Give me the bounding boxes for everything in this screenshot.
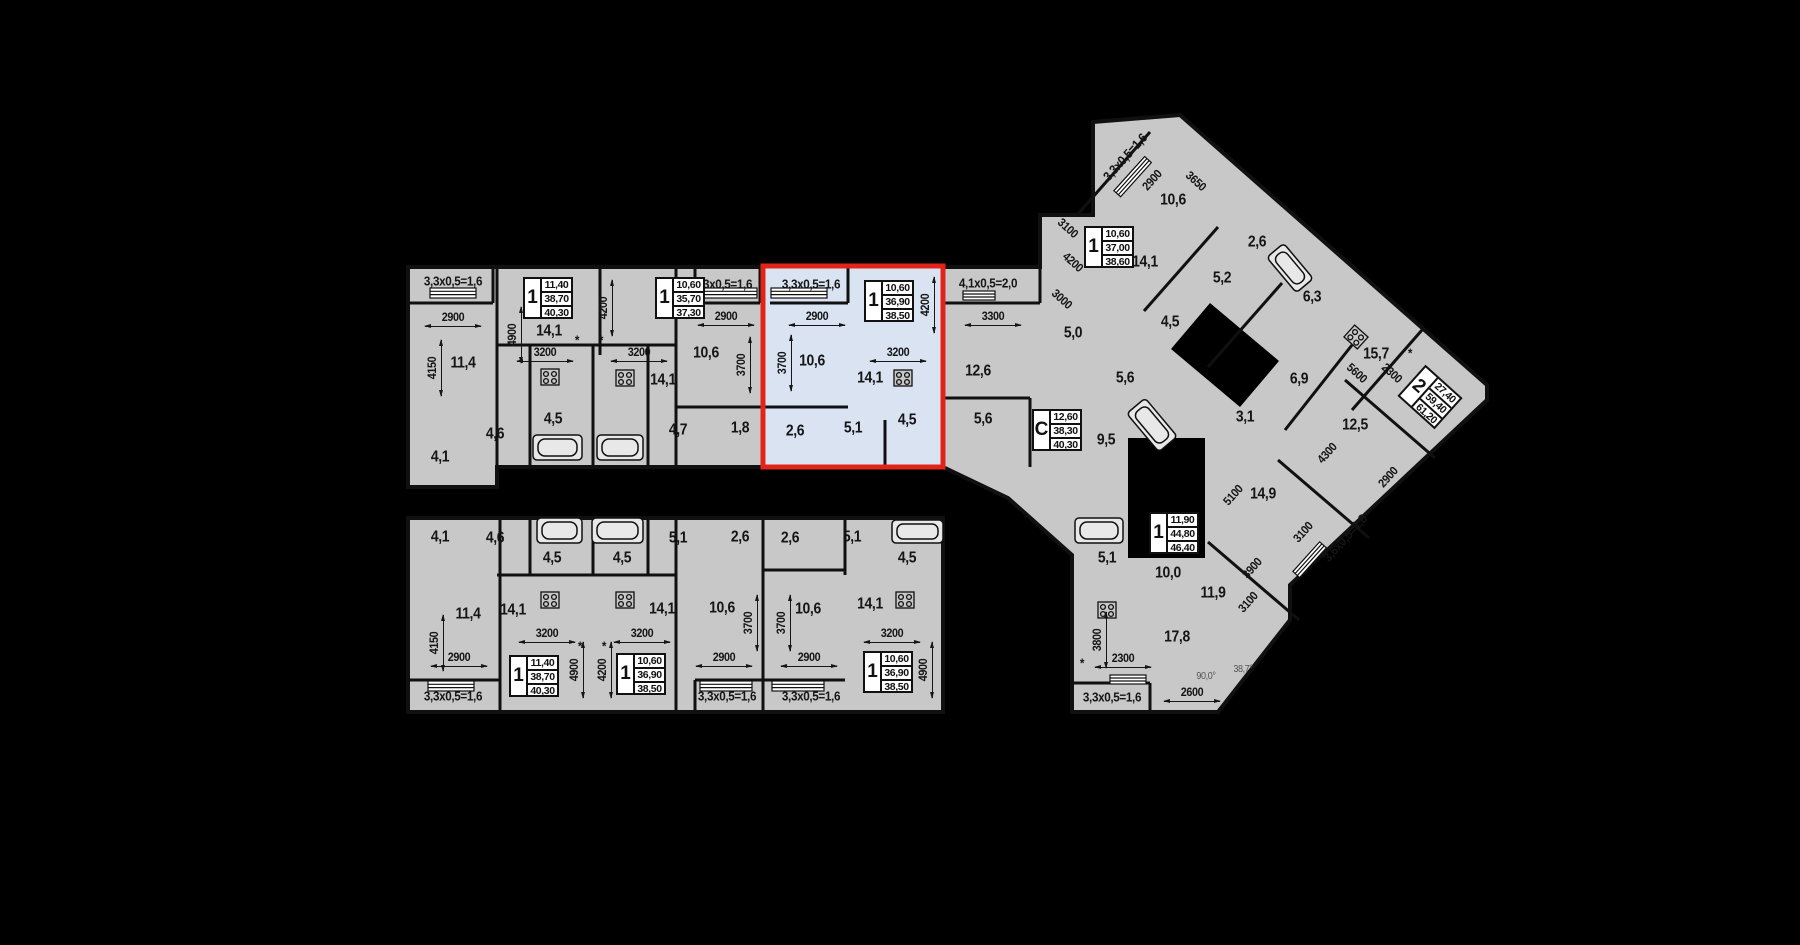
total-area: 38,60 [1103, 256, 1132, 268]
area-values: 10,6035,7037,30 [674, 279, 703, 317]
dimension-line [790, 595, 791, 651]
room-count: 1 [511, 657, 528, 695]
balcony-area-label: 3,3х0,5=1,6 [424, 275, 482, 288]
room-area-label: 4,1 [431, 449, 449, 465]
vent-shaft-marker: * [602, 640, 606, 653]
balcony-area-label: 3,3х0,5=1,6 [782, 690, 840, 703]
living-area: 11,90 [1168, 514, 1197, 528]
room-area-label: 5,1 [1098, 550, 1116, 566]
apartment-area: 44,80 [1168, 528, 1197, 542]
apartment-stat-box: 111,4038,7040,30 [523, 277, 573, 319]
room-area-label: 5,2 [1213, 270, 1231, 286]
total-area: 40,30 [1051, 439, 1080, 451]
room-area-label: 5,6 [1116, 370, 1134, 386]
room-area-label: 4,5 [898, 550, 916, 566]
total-area: 40,30 [528, 685, 557, 697]
room-area-label: 12,6 [965, 363, 991, 379]
dimension-label: 3700 [775, 612, 787, 635]
dimension-label: 3300 [982, 310, 1005, 322]
room-area-label: 14,1 [649, 601, 675, 617]
dimension-line [611, 642, 612, 698]
room-area-label: 11,9 [1201, 585, 1226, 601]
dimension-line [932, 642, 933, 698]
room-count: 1 [657, 279, 674, 317]
selected-apartment-stat-box[interactable]: 110,6036,9038,50 [864, 280, 914, 322]
dimension-label: 3700 [742, 612, 754, 635]
apartment-area: 35,70 [674, 293, 703, 307]
room-count: 1 [1151, 514, 1168, 552]
vent-shaft-marker: * [599, 334, 603, 347]
dimension-label: 5100 [1221, 483, 1245, 508]
room-area-label: 2,6 [1248, 234, 1266, 250]
dimension-label: 4150 [428, 632, 440, 655]
room-area-label: 14,1 [857, 596, 883, 612]
room-area-label: 15,7 [1363, 346, 1389, 362]
dimension-label: 4150 [426, 357, 438, 380]
dimension-line [1164, 701, 1220, 702]
room-count: С [1034, 411, 1051, 449]
apartment-area: 38,70 [528, 671, 557, 685]
balcony-area-label: 3,3х0,5=1,6 [782, 278, 840, 291]
room-area-label: 2,6 [786, 423, 804, 439]
total-area: 38,50 [883, 310, 912, 322]
dimension-label: 3100 [1236, 590, 1260, 615]
room-area-label: 2,6 [781, 530, 799, 546]
dimension-label: 5600 [1345, 361, 1370, 385]
dimension-line [965, 325, 1021, 326]
room-area-label: 4,7 [669, 422, 687, 438]
living-area: 11,40 [528, 657, 557, 671]
apartment-area: 38,30 [1051, 425, 1080, 439]
balcony-area-label: 3,3х0,5=1,6 [1101, 131, 1150, 183]
dimension-label: 2300 [1380, 361, 1405, 385]
room-area-label: 4,5 [1161, 314, 1179, 330]
room-area-label: 5,1 [843, 529, 861, 545]
room-area-label: 4,6 [486, 530, 504, 546]
area-values: 11,9044,8046,40 [1168, 514, 1197, 552]
room-area-label: 5,1 [669, 530, 687, 546]
dimension-line [614, 642, 670, 643]
dimension-line [757, 595, 758, 651]
apartment-stat-box: 110,6035,7037,30 [655, 277, 705, 319]
living-area: 10,60 [882, 653, 911, 667]
room-area-label: 10,6 [709, 600, 735, 616]
dimension-line [431, 666, 487, 667]
vent-shaft-marker: * [1408, 347, 1412, 360]
dimension-label: 4300 [1315, 441, 1339, 466]
total-area: 38,50 [635, 683, 664, 695]
dimension-line [441, 340, 442, 396]
room-count: 1 [866, 282, 883, 320]
dimension-label: 2900 [715, 310, 738, 322]
room-area-label: 4,1 [431, 529, 449, 545]
dimension-label: 4900 [917, 659, 929, 682]
dimension-line [864, 642, 920, 643]
room-area-label: 5,0 [1064, 325, 1082, 341]
apartment-stat-box: 110,6036,9038,50 [863, 651, 913, 693]
dimension-label: 2300 [1112, 652, 1135, 664]
dimension-line [521, 307, 522, 363]
room-area-label: 17,8 [1164, 629, 1190, 645]
dimension-label: 3200 [887, 346, 910, 358]
room-area-label: 11,4 [451, 355, 476, 371]
total-area: 46,40 [1168, 542, 1197, 554]
dimension-label: 4200 [1061, 250, 1086, 274]
apartment-area: 36,90 [882, 667, 911, 681]
room-area-label: 3,1 [1236, 409, 1254, 425]
area-values: 11,4038,7040,30 [542, 279, 571, 317]
dimension-label: 3900 [1240, 556, 1264, 581]
apartment-stat-box: С12,6038,3040,30 [1032, 409, 1082, 451]
apartment-area: 36,90 [635, 669, 664, 683]
dimension-line [791, 335, 792, 391]
dimension-line [750, 337, 751, 393]
dimension-line [443, 615, 444, 671]
dimension-label: 3650 [1184, 169, 1209, 193]
living-area: 10,60 [1103, 228, 1132, 242]
vent-shaft-marker: * [1080, 657, 1084, 670]
dimension-label: 3100 [1056, 216, 1081, 240]
vent-shaft-marker: * [575, 334, 579, 347]
dimension-line [583, 642, 584, 698]
dimension-line [611, 361, 667, 362]
dimension-label: 2900 [442, 311, 465, 323]
floor-plan: 3,3х0,5=1,62900415011,4490014,132004,54,… [0, 0, 1800, 945]
dimension-line [870, 361, 926, 362]
dimension-line [781, 666, 837, 667]
room-area-label: 14,1 [857, 370, 883, 386]
room-area-label: 10,6 [799, 353, 825, 369]
room-area-label: 14,1 [650, 372, 676, 388]
dimension-label: 2900 [713, 651, 736, 663]
room-area-label: 2,6 [731, 529, 749, 545]
room-area-label: 9,5 [1097, 432, 1115, 448]
apartment-area: 36,90 [883, 296, 912, 310]
room-area-label: 11,4 [456, 606, 481, 622]
apartment-stat-box: 227,4059,4061,20 [1397, 365, 1462, 430]
room-area-label: 10,6 [693, 345, 719, 361]
vent-shaft-marker: * [578, 640, 582, 653]
room-area-label: 10,6 [795, 601, 821, 617]
apartment-stat-box: 110,6036,9038,50 [616, 653, 666, 695]
room-area-label: 6,9 [1290, 371, 1308, 387]
dimension-label: 3200 [534, 346, 557, 358]
area-values: 12,6038,3040,30 [1051, 411, 1080, 449]
dimension-label: 2900 [1376, 465, 1400, 490]
room-area-label: 14,9 [1250, 486, 1276, 502]
dimension-label: 3200 [628, 346, 651, 358]
dimension-line [612, 280, 613, 336]
dimension-label: 2900 [806, 310, 829, 322]
room-area-label: 14,1 [536, 323, 562, 339]
dimension-line [517, 361, 573, 362]
dimension-label: 4900 [506, 324, 518, 347]
dimension-label: 3100 [1291, 520, 1315, 545]
dimension-label: 4200 [597, 297, 609, 320]
dimension-label: 4200 [596, 659, 608, 682]
room-area-label: 4,5 [544, 411, 562, 427]
apartment-stat-box: 110,6037,0038,60 [1084, 226, 1134, 268]
room-area-label: 6,3 [1303, 289, 1321, 305]
room-area-label: 4,5 [543, 550, 561, 566]
dimension-line [519, 642, 575, 643]
dimension-label: 4200 [919, 294, 931, 317]
dimension-label: 2900 [448, 651, 471, 663]
dimension-line [698, 325, 754, 326]
balcony-area-label: 3,3х0,5=1,6 [424, 690, 482, 703]
dimension-label: 3700 [735, 354, 747, 377]
area-values: 10,6036,9038,50 [635, 655, 664, 693]
balcony-area-label: 3,3х0,5=1,6 [698, 690, 756, 703]
room-area-label: 5,1 [844, 420, 862, 436]
dimension-label: 2900 [1140, 168, 1164, 193]
dimension-label: 3200 [881, 627, 904, 639]
total-area: 38,50 [882, 681, 911, 693]
living-area: 10,60 [674, 279, 703, 293]
dimension-line [1106, 612, 1107, 668]
living-area: 10,60 [635, 655, 664, 669]
apartment-stat-box: 111,4038,7040,30 [509, 655, 559, 697]
dimension-label: 4900 [568, 659, 580, 682]
room-area-label: 4,6 [486, 426, 504, 442]
dimension-label: 3800 [1091, 629, 1103, 652]
total-area: 40,30 [542, 307, 571, 319]
dimension-label: 2600 [1181, 686, 1204, 698]
dimension-line [1095, 667, 1151, 668]
balcony-area-label: 3,6х0,5=1,8 [1321, 512, 1370, 564]
dimension-label: 3700 [776, 352, 788, 375]
dimension-line [425, 326, 481, 327]
dimension-label: 2900 [798, 651, 821, 663]
room-area-label: 10,0 [1155, 565, 1181, 581]
dimension-label: 3000 [1050, 287, 1075, 311]
room-count: 1 [618, 655, 635, 693]
angle-label: 90,0° [1196, 672, 1215, 682]
room-area-label: 10,6 [1160, 192, 1186, 208]
dimension-line [934, 277, 935, 333]
room-count: 1 [1086, 228, 1103, 266]
label-layer: 3,3х0,5=1,62900415011,4490014,132004,54,… [0, 0, 1800, 945]
room-area-label: 4,5 [898, 412, 916, 428]
room-area-label: 4,5 [613, 550, 631, 566]
dimension-label: 3200 [536, 627, 559, 639]
angle-label: 38,7° [1233, 665, 1252, 675]
apartment-stat-box: 111,9044,8046,40 [1149, 512, 1199, 554]
area-values: 11,4038,7040,30 [528, 657, 557, 695]
area-values: 10,6037,0038,60 [1103, 228, 1132, 266]
room-area-label: 12,5 [1342, 417, 1368, 433]
total-area: 37,30 [674, 307, 703, 319]
living-area: 11,40 [542, 279, 571, 293]
room-area-label: 5,6 [974, 411, 992, 427]
dimension-line [696, 666, 752, 667]
balcony-area-label: 3,3х0,5=1,6 [1083, 691, 1141, 704]
apartment-area: 38,70 [542, 293, 571, 307]
room-area-label: 1,8 [731, 420, 749, 436]
room-area-label: 14,1 [500, 602, 526, 618]
area-values: 10,6036,9038,50 [882, 653, 911, 691]
room-count: 1 [525, 279, 542, 317]
room-count: 1 [865, 653, 882, 691]
area-values: 10,6036,9038,50 [883, 282, 912, 320]
living-area: 12,60 [1051, 411, 1080, 425]
balcony-area-label: 4,1х0,5=2,0 [959, 277, 1017, 290]
room-area-label: 14,1 [1132, 254, 1158, 270]
dimension-line [789, 325, 845, 326]
dimension-label: 3200 [631, 627, 654, 639]
apartment-area: 37,00 [1103, 242, 1132, 256]
living-area: 10,60 [883, 282, 912, 296]
